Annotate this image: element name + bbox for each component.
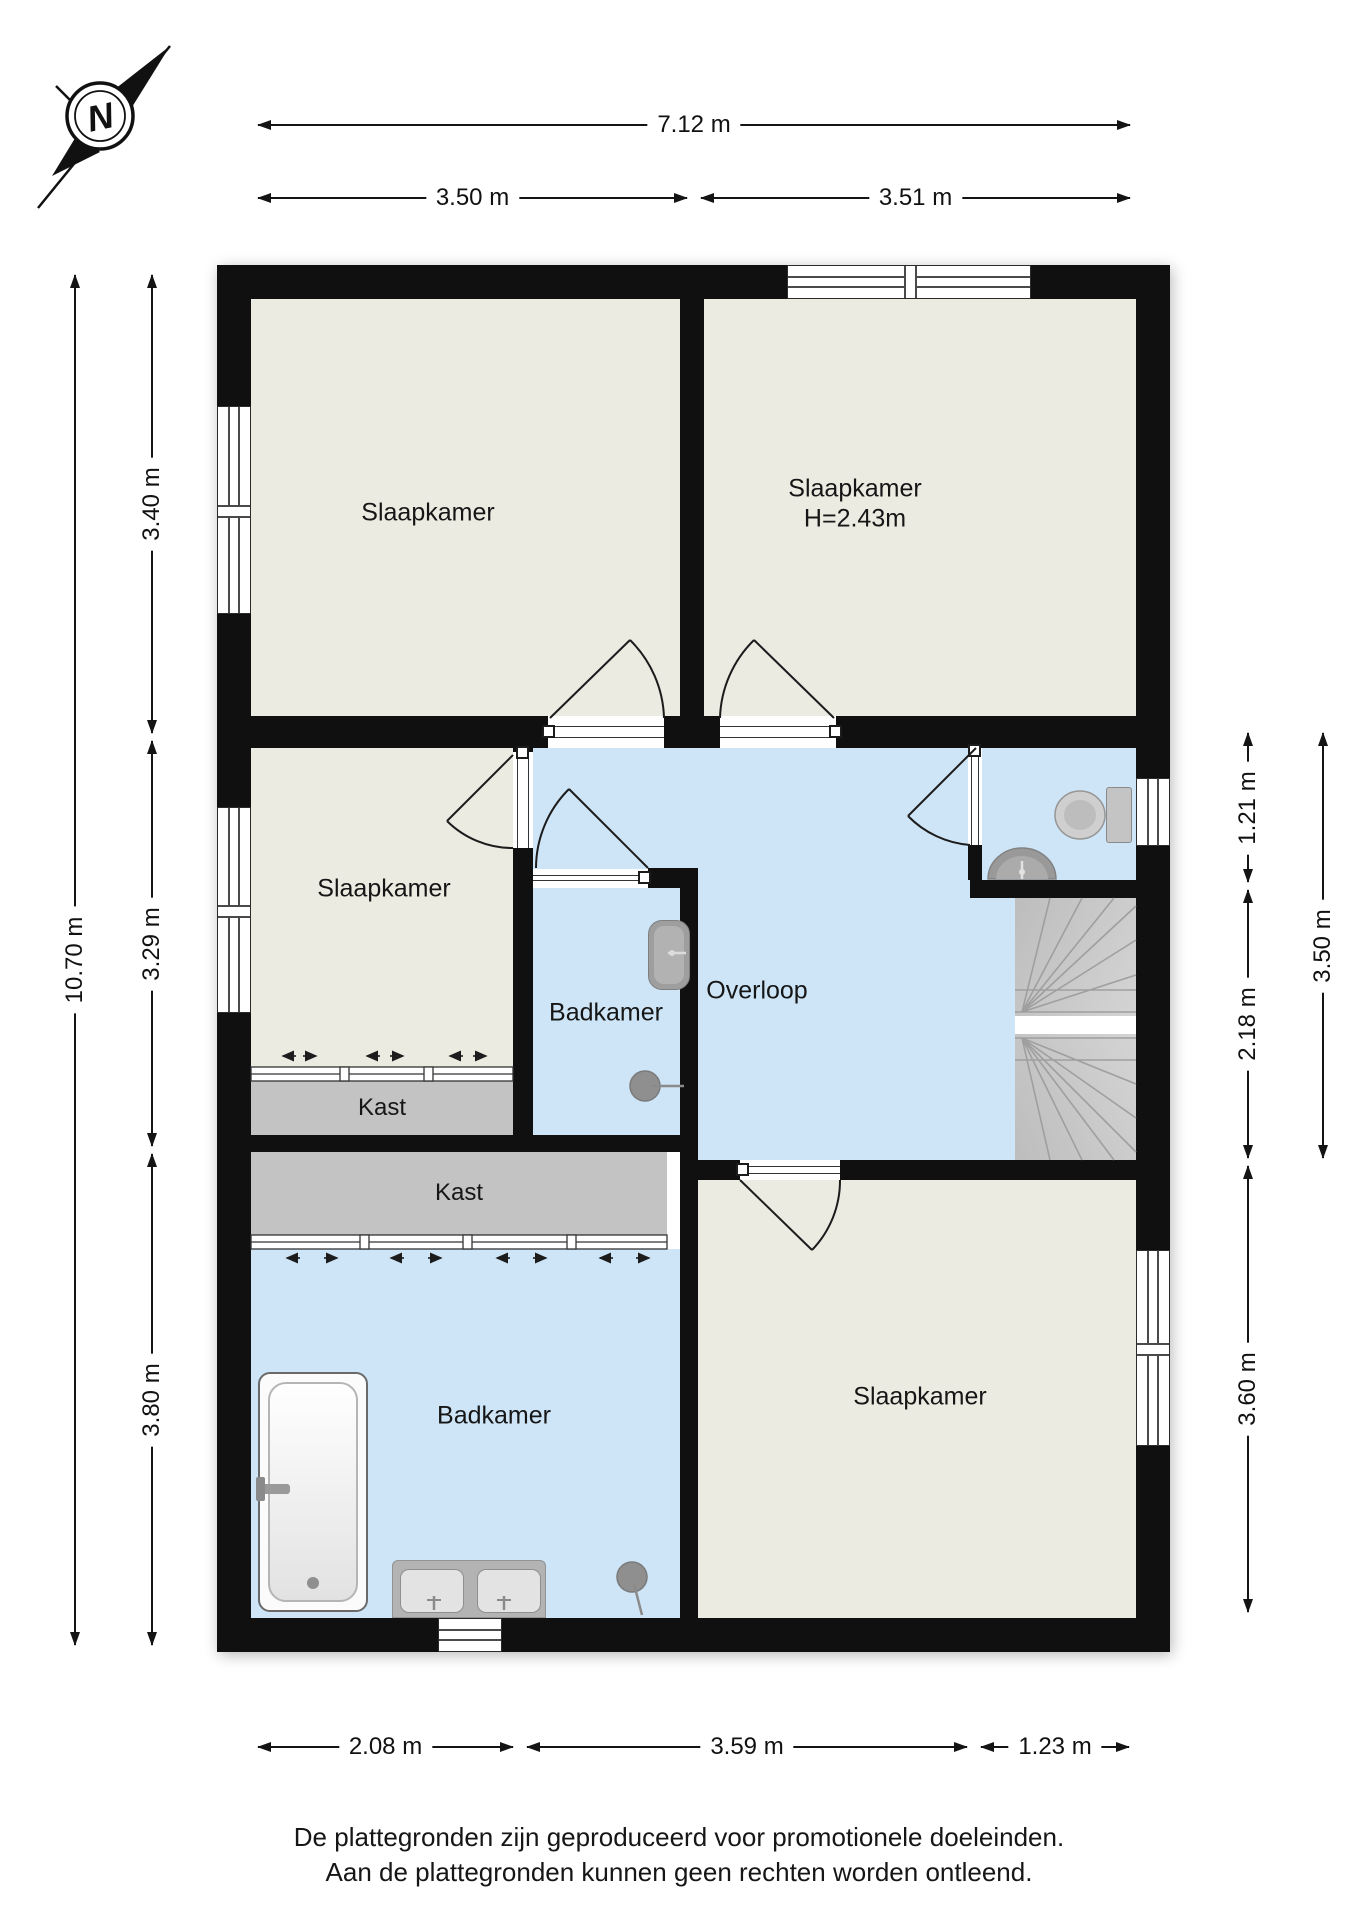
door-swings <box>447 640 976 1250</box>
dim-top-total: 7.12 m <box>258 124 1130 126</box>
room-label-bedroom-top-left: Slaapkamer <box>361 499 494 528</box>
disclaimer-line-1: De plattegronden zijn geproduceerd voor … <box>0 1820 1358 1855</box>
dim-left-total: 10.70 m <box>74 275 76 1645</box>
room-label-bedroom-middle-left: Slaapkamer <box>317 875 450 904</box>
room-label-closet-lower: Kast <box>435 1179 483 1207</box>
closet-tracks <box>251 1067 667 1249</box>
dim-right-bedroom: 3.60 m <box>1247 1166 1249 1612</box>
dim-top-left-bedroom: 3.50 m <box>258 197 687 199</box>
bathtub-drain <box>307 1577 319 1589</box>
room-label-bedroom-bottom-right: Slaapkamer <box>853 1383 986 1412</box>
plumbing-fixtures <box>256 791 1105 1615</box>
dim-bottom-right: 1.23 m <box>981 1746 1129 1748</box>
dim-left-top-section: 3.40 m <box>151 275 153 733</box>
dim-bottom-middle: 3.59 m <box>527 1746 967 1748</box>
closet-slide-arrows <box>283 1056 649 1258</box>
floorplan-page: N <box>0 0 1358 1920</box>
room-label-closet-upper: Kast <box>358 1094 406 1122</box>
stair-treads <box>1015 898 1136 1160</box>
room-label-bathroom-large: Badkamer <box>437 1402 551 1431</box>
room-label-landing: Overloop <box>706 977 807 1006</box>
dim-right-toilet: 1.21 m <box>1247 733 1249 882</box>
room-label-ceiling-height: H=2.43m <box>804 505 906 534</box>
dim-top-right-bedroom: 3.51 m <box>701 197 1130 199</box>
dim-left-bottom-section: 3.80 m <box>151 1154 153 1645</box>
dim-left-middle-section: 3.29 m <box>151 741 153 1146</box>
plan-overlay: N <box>0 0 1358 1920</box>
room-label-bathroom-small: Badkamer <box>549 999 663 1028</box>
shower-head-large-bathroom <box>617 1562 647 1592</box>
dim-right-combined: 3.50 m <box>1322 733 1324 1158</box>
disclaimer: De plattegronden zijn geproduceerd voor … <box>0 1820 1358 1890</box>
dim-bottom-left: 2.08 m <box>258 1746 513 1748</box>
dim-right-stairs: 2.18 m <box>1247 890 1249 1158</box>
room-label-bedroom-top-right: Slaapkamer <box>788 475 921 504</box>
disclaimer-line-2: Aan de plattegronden kunnen geen rechten… <box>0 1855 1358 1890</box>
compass-icon: N <box>38 46 170 208</box>
